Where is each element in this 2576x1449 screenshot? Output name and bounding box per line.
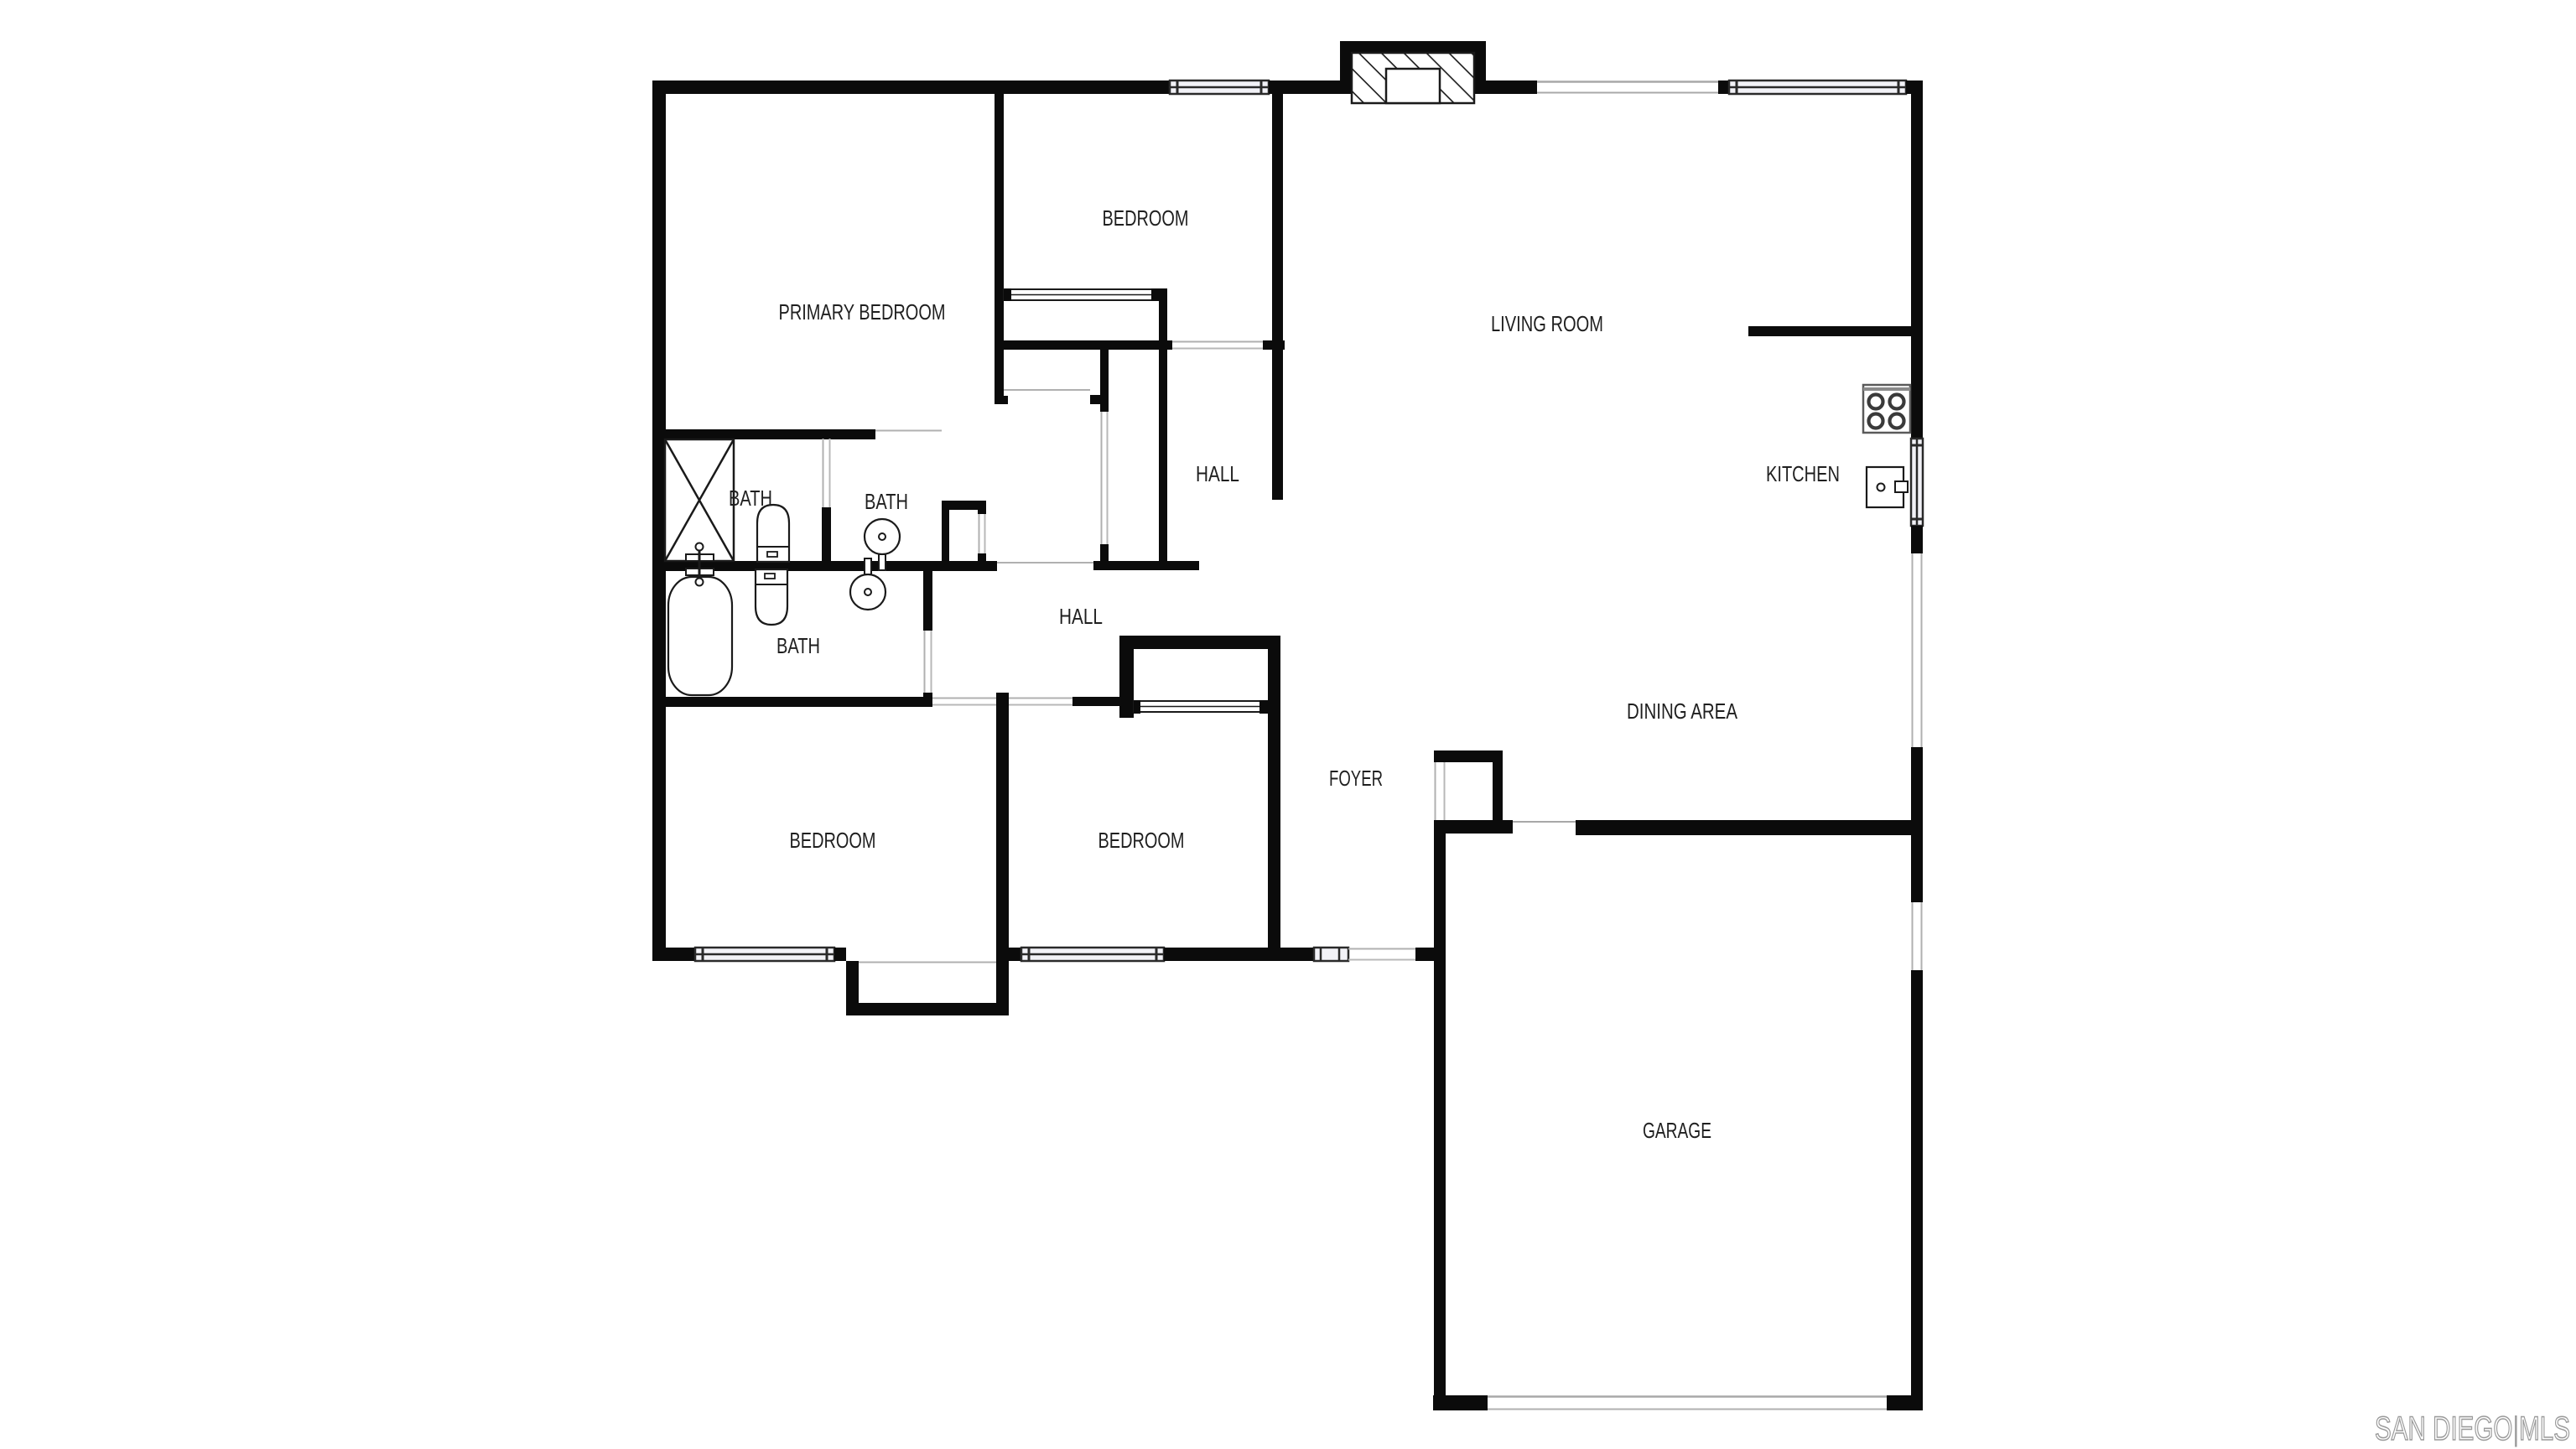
svg-text:PRIMARY BEDROOM: PRIMARY BEDROOM xyxy=(779,301,946,325)
svg-text:BATH: BATH xyxy=(776,635,820,658)
svg-text:GARAGE: GARAGE xyxy=(1643,1119,1711,1143)
svg-text:BATH: BATH xyxy=(729,487,772,511)
svg-text:HALL: HALL xyxy=(1196,463,1239,486)
svg-text:FOYER: FOYER xyxy=(1329,767,1383,791)
svg-text:BATH: BATH xyxy=(865,491,908,514)
svg-text:DINING AREA: DINING AREA xyxy=(1627,700,1737,724)
svg-text:LIVING ROOM: LIVING ROOM xyxy=(1491,313,1603,336)
svg-text:BEDROOM: BEDROOM xyxy=(1098,829,1185,853)
svg-text:KITCHEN: KITCHEN xyxy=(1766,463,1840,486)
svg-text:BEDROOM: BEDROOM xyxy=(1103,207,1189,231)
svg-text:BEDROOM: BEDROOM xyxy=(790,829,876,853)
svg-text:SAN DIEGO|MLS: SAN DIEGO|MLS xyxy=(2375,1410,2570,1447)
svg-text:HALL: HALL xyxy=(1059,605,1103,629)
